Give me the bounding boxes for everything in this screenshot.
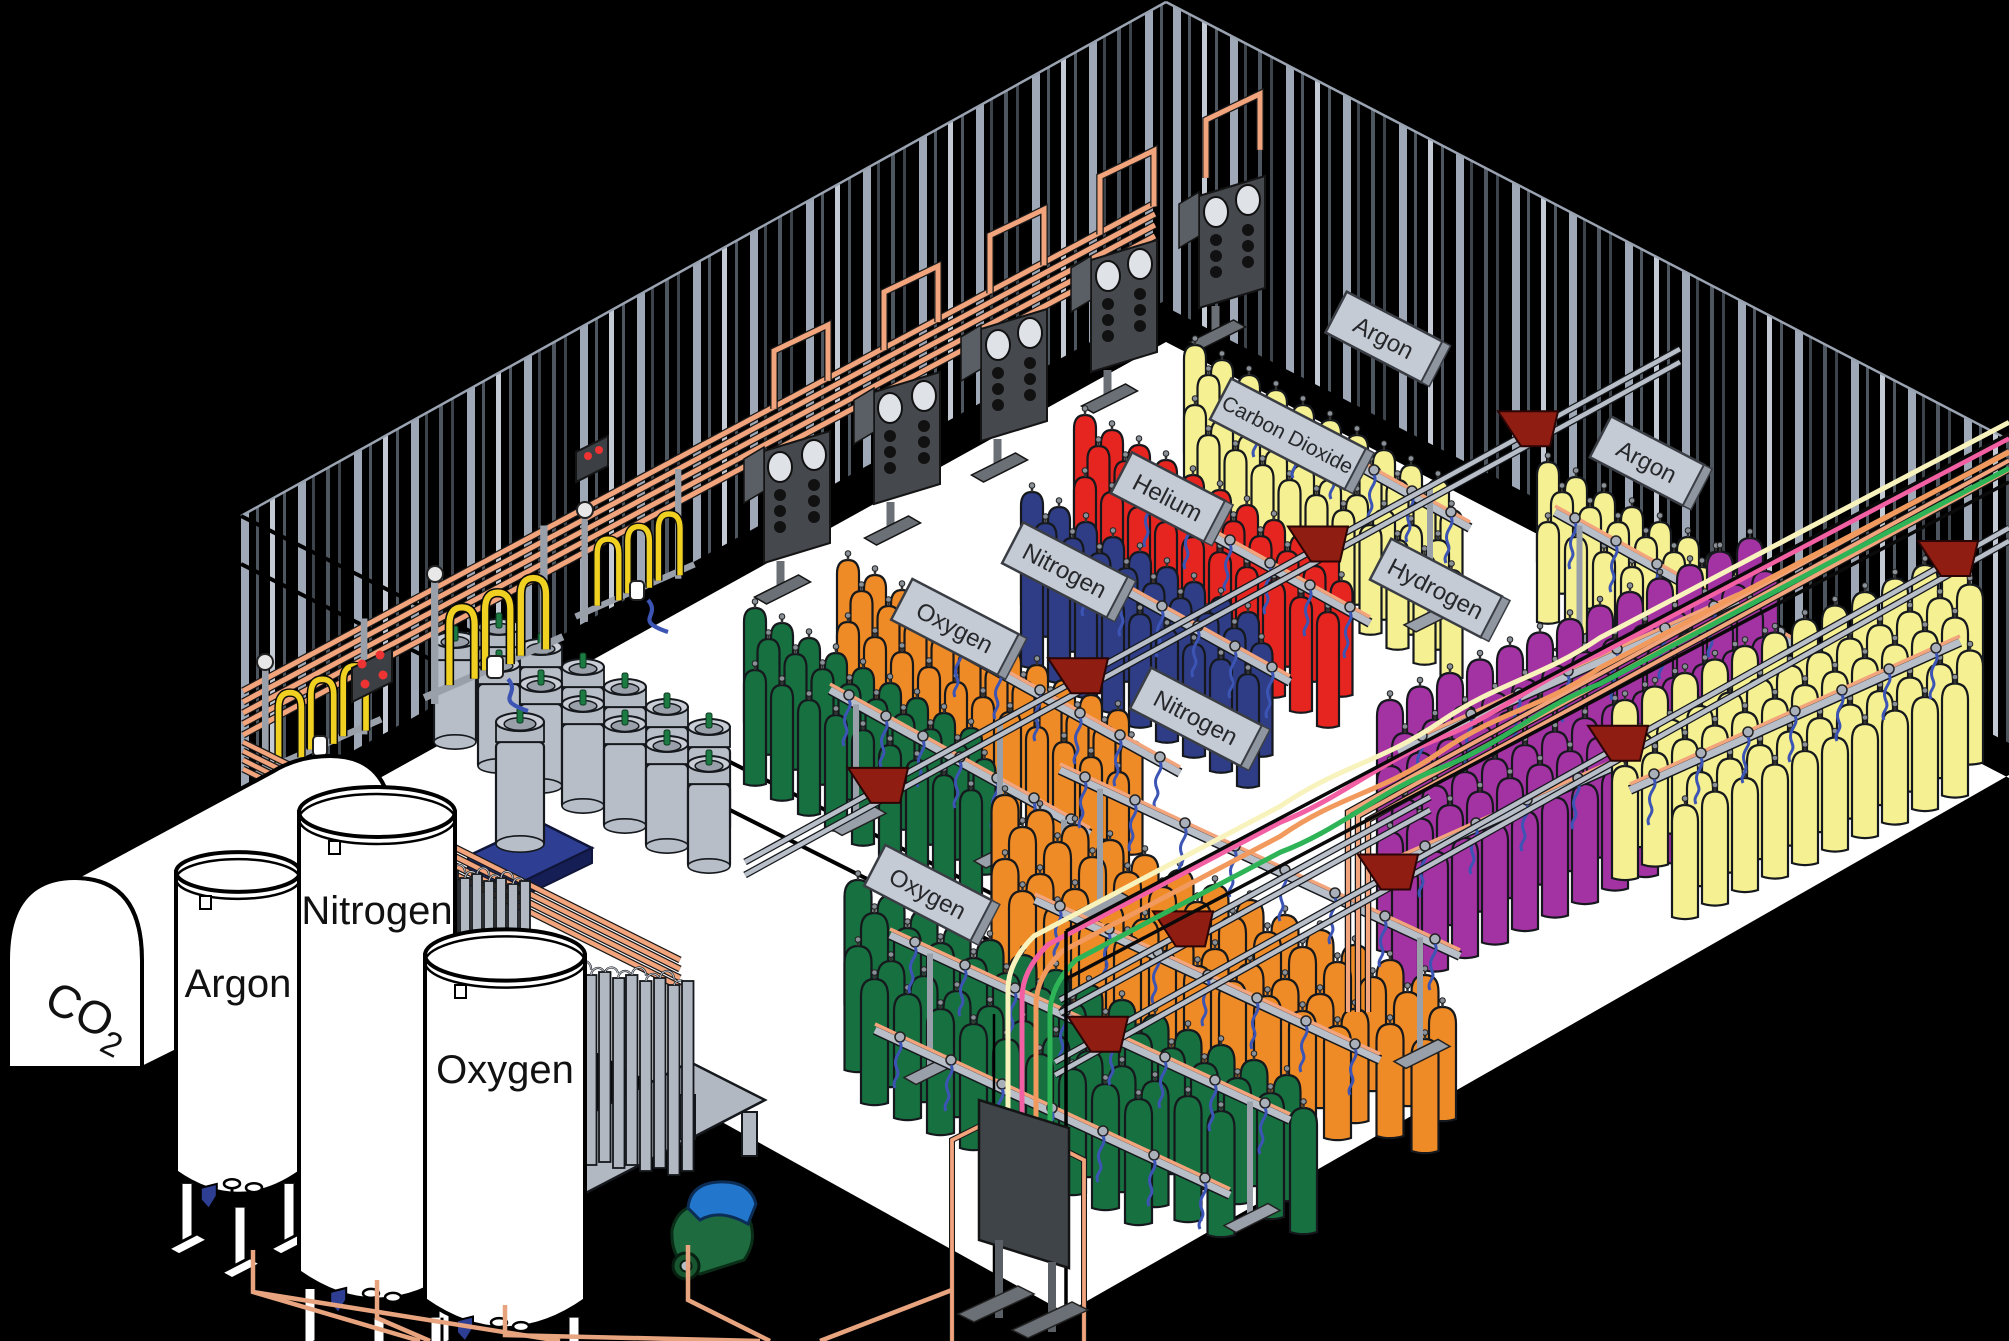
svg-text:Argon: Argon xyxy=(185,962,292,1006)
svg-text:Oxygen: Oxygen xyxy=(436,1048,574,1092)
svg-text:Nitrogen: Nitrogen xyxy=(301,889,452,933)
